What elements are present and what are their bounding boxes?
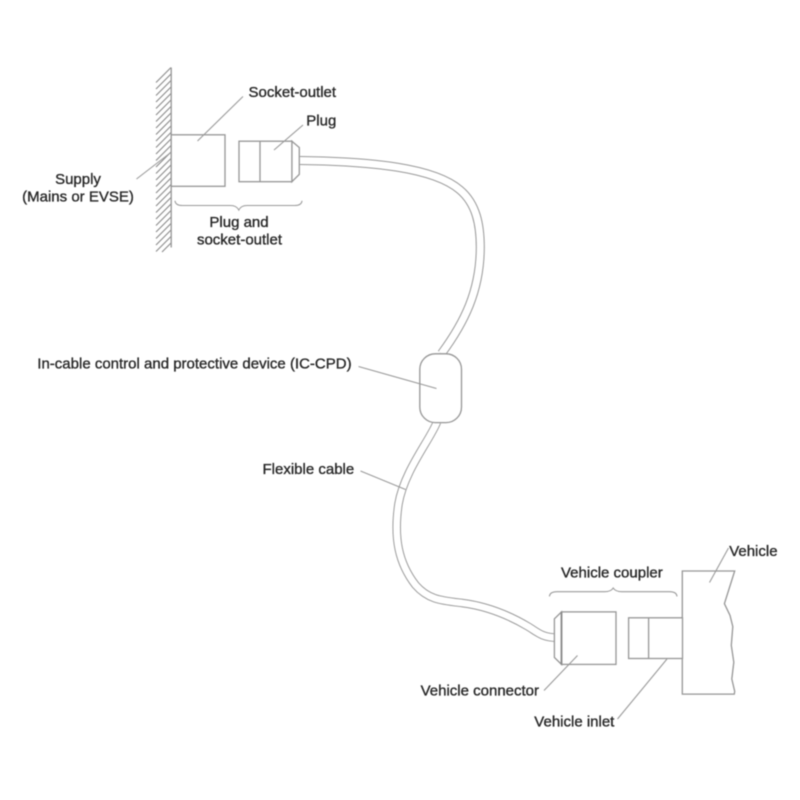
svg-text:Plug and: Plug and <box>209 214 268 231</box>
svg-text:In-cable control and protectiv: In-cable control and protective device (… <box>37 355 351 372</box>
svg-text:Vehicle coupler: Vehicle coupler <box>561 565 663 582</box>
svg-text:(Mains or EVSE): (Mains or EVSE) <box>22 189 134 206</box>
svg-text:Supply: Supply <box>55 171 101 188</box>
svg-text:Vehicle inlet: Vehicle inlet <box>534 714 615 731</box>
svg-text:Vehicle connector: Vehicle connector <box>421 683 539 700</box>
svg-text:Flexible cable: Flexible cable <box>263 461 355 478</box>
svg-text:socket-outlet: socket-outlet <box>197 232 283 249</box>
svg-text:Plug: Plug <box>306 113 336 130</box>
svg-text:Socket-outlet: Socket-outlet <box>249 84 337 101</box>
svg-text:Vehicle: Vehicle <box>729 543 777 560</box>
